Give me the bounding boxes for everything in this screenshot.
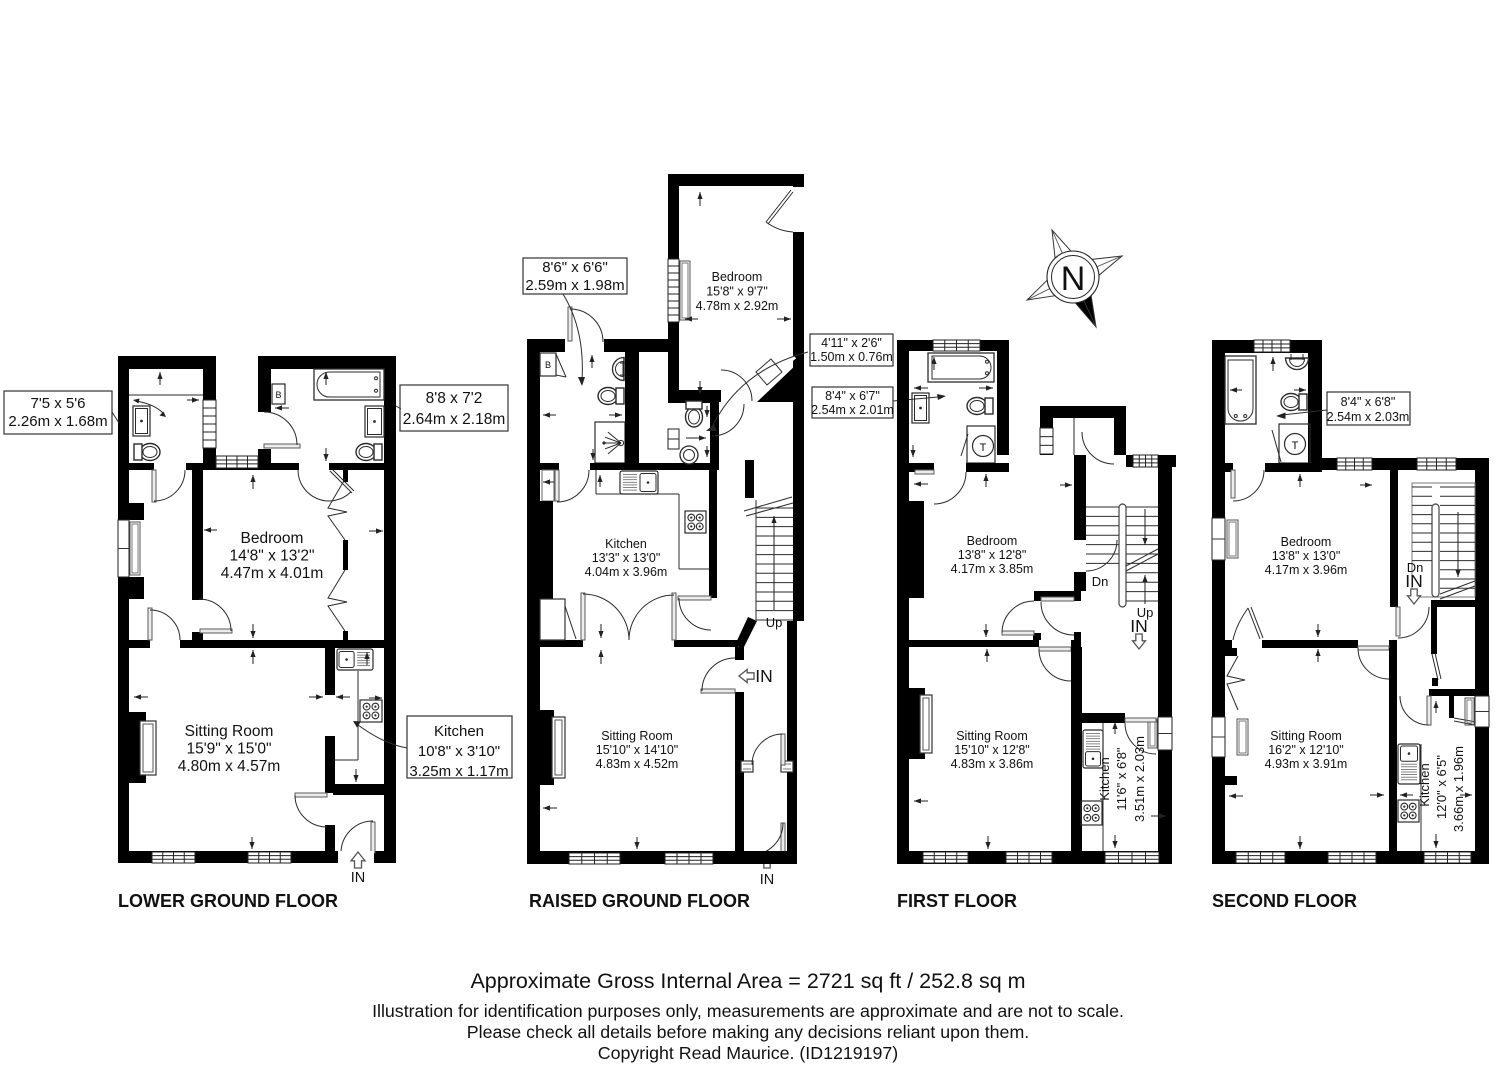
svg-text:Sitting Room: Sitting Room: [185, 723, 274, 740]
svg-text:4.80m x 4.57m: 4.80m x 4.57m: [178, 758, 281, 775]
svg-text:4.17m x 3.85m: 4.17m x 3.85m: [951, 562, 1034, 576]
svg-text:Kitchen: Kitchen: [605, 537, 647, 551]
svg-text:16'2" x 12'10": 16'2" x 12'10": [1268, 743, 1344, 757]
svg-text:8'4" x 6'8": 8'4" x 6'8": [1341, 395, 1396, 409]
svg-text:11'6" x 6'8": 11'6" x 6'8": [1114, 747, 1129, 810]
svg-text:4.04m x 3.96m: 4.04m x 3.96m: [585, 565, 668, 579]
svg-text:IN: IN: [1130, 616, 1148, 636]
svg-text:Bedroom: Bedroom: [712, 270, 763, 284]
svg-text:4.47m x 4.01m: 4.47m x 4.01m: [221, 565, 324, 582]
svg-text:4.83m x 3.86m: 4.83m x 3.86m: [951, 757, 1034, 771]
svg-text:Sitting Room: Sitting Room: [956, 729, 1028, 743]
svg-text:Kitchen: Kitchen: [434, 723, 484, 740]
svg-text:4.78m x 2.92m: 4.78m x 2.92m: [696, 299, 779, 313]
svg-text:Sitting Room: Sitting Room: [1270, 729, 1342, 743]
svg-text:3.25m x 1.17m: 3.25m x 1.17m: [409, 763, 508, 780]
svg-text:15'10" x 12'8": 15'10" x 12'8": [954, 743, 1030, 757]
svg-text:IN: IN: [755, 666, 773, 686]
svg-text:FIRST FLOOR: FIRST FLOOR: [897, 891, 1017, 911]
svg-text:T: T: [1292, 440, 1299, 452]
svg-text:2.54m x 2.01m: 2.54m x 2.01m: [811, 403, 894, 417]
svg-text:8'6" x 6'6": 8'6" x 6'6": [542, 259, 608, 276]
svg-text:13'8" x 13'0": 13'8" x 13'0": [1272, 549, 1341, 563]
svg-text:12'0" x 6'5": 12'0" x 6'5": [1434, 755, 1449, 819]
svg-text:IN: IN: [351, 870, 366, 886]
svg-text:IN: IN: [760, 872, 775, 888]
svg-text:SECOND FLOOR: SECOND FLOOR: [1212, 891, 1357, 911]
svg-text:B: B: [545, 360, 551, 370]
svg-text:15'10" x 14'10": 15'10" x 14'10": [596, 743, 678, 757]
svg-text:1.50m x 0.76m: 1.50m x 0.76m: [810, 350, 893, 364]
svg-text:13'8" x 12'8": 13'8" x 12'8": [958, 548, 1027, 562]
svg-text:4.93m x 3.91m: 4.93m x 3.91m: [1265, 757, 1348, 771]
svg-text:RAISED GROUND FLOOR: RAISED GROUND FLOOR: [529, 891, 750, 911]
svg-text:7'5 x 5'6: 7'5 x 5'6: [31, 395, 86, 412]
svg-text:4'11" x 2'6": 4'11" x 2'6": [821, 336, 882, 350]
svg-text:Dn: Dn: [1092, 574, 1109, 589]
svg-text:Kitchen: Kitchen: [1097, 757, 1112, 800]
svg-text:15'8" x 9'7": 15'8" x 9'7": [706, 285, 768, 299]
svg-text:3.66m x 1.96m: 3.66m x 1.96m: [1451, 746, 1466, 832]
svg-text:4.17m x 3.96m: 4.17m x 3.96m: [1265, 563, 1348, 577]
svg-text:Bedroom: Bedroom: [241, 530, 304, 547]
svg-text:4.83m x 4.52m: 4.83m x 4.52m: [596, 757, 679, 771]
svg-text:10'8" x 3'10": 10'8" x 3'10": [418, 743, 500, 760]
svg-text:15'9" x 15'0": 15'9" x 15'0": [186, 741, 271, 758]
svg-text:Sitting Room: Sitting Room: [601, 729, 673, 743]
svg-text:B: B: [275, 390, 281, 400]
svg-text:Approximate Gross Internal Are: Approximate Gross Internal Area = 2721 s…: [470, 969, 1025, 993]
svg-text:Bedroom: Bedroom: [1281, 535, 1332, 549]
svg-text:Please check all details befor: Please check all details before making a…: [467, 1022, 1029, 1042]
svg-text:8'4" x 6'7": 8'4" x 6'7": [825, 389, 880, 403]
svg-text:14'8" x 13'2": 14'8" x 13'2": [229, 548, 314, 565]
svg-text:Illustration for identificatio: Illustration for identification purposes…: [372, 1001, 1124, 1021]
svg-text:3.51m x 2.03m: 3.51m x 2.03m: [1132, 736, 1147, 822]
svg-text:13'3" x 13'0": 13'3" x 13'0": [592, 551, 661, 565]
svg-text:Kitchen: Kitchen: [1417, 763, 1432, 806]
svg-text:2.64m x 2.18m: 2.64m x 2.18m: [403, 411, 506, 428]
svg-text:8'8 x 7'2: 8'8 x 7'2: [426, 390, 483, 407]
svg-text:N: N: [1061, 260, 1086, 298]
svg-text:Bedroom: Bedroom: [967, 534, 1018, 548]
svg-text:LOWER GROUND FLOOR: LOWER GROUND FLOOR: [118, 891, 338, 911]
svg-text:2.59m x 1.98m: 2.59m x 1.98m: [525, 277, 624, 294]
svg-text:2.54m x 2.03m: 2.54m x 2.03m: [1327, 410, 1410, 424]
svg-text:T: T: [980, 442, 987, 454]
svg-text:IN: IN: [1405, 571, 1423, 591]
svg-text:Up: Up: [766, 615, 783, 630]
svg-text:2.26m x 1.68m: 2.26m x 1.68m: [8, 413, 107, 430]
svg-text:Copyright Read Maurice. (ID121: Copyright Read Maurice. (ID1219197): [598, 1043, 898, 1063]
